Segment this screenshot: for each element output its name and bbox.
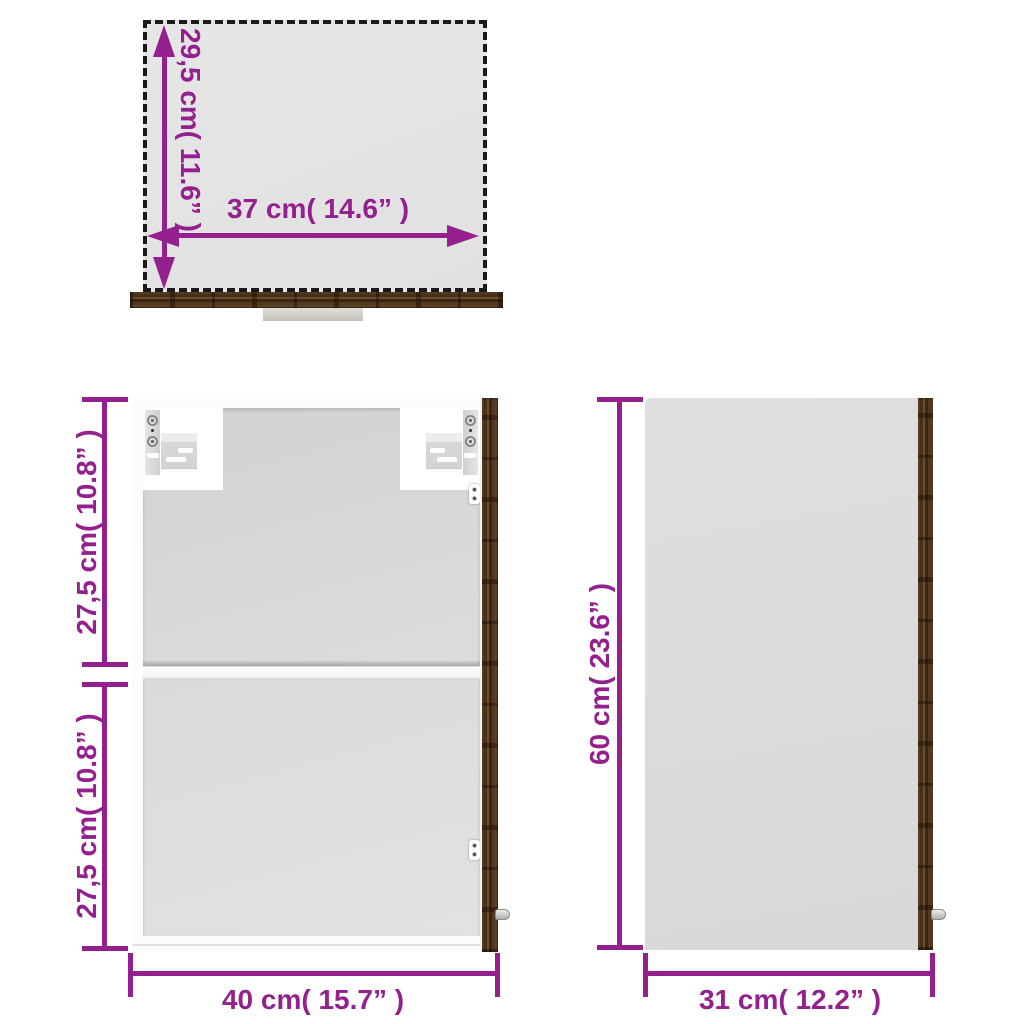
product-dimension-diagram: 29,5 cm( 11.6” ) 37 cm( 14.6” ) — [0, 0, 1024, 1024]
screw-icon — [147, 436, 158, 447]
dim-line-lower-height — [102, 682, 107, 951]
dim-cap — [82, 662, 128, 667]
top-view-depth-label: 29,5 cm( 11.6” ) — [176, 28, 204, 232]
screw-icon — [465, 436, 476, 447]
dim-line-side-height — [617, 397, 622, 950]
door-knob — [931, 909, 946, 920]
top-view-wood-edge — [130, 292, 503, 308]
front-lower-height-label: 27,5 cm( 10.8” ) — [73, 713, 101, 918]
front-upper-height-label: 27,5 cm( 10.8” ) — [73, 429, 101, 634]
side-view-cabinet — [645, 398, 933, 950]
hinge-icon — [469, 840, 480, 860]
screw-hole-icon — [469, 429, 472, 432]
dim-line-side-depth — [643, 971, 935, 976]
top-view-width-label: 37 cm( 14.6” ) — [227, 195, 409, 223]
side-height-label: 60 cm( 23.6” ) — [586, 583, 614, 765]
hinge-icon — [469, 484, 480, 504]
bracket-slot — [147, 453, 159, 458]
bracket-slot — [464, 453, 476, 458]
bracket-slot — [178, 448, 193, 453]
front-width-label: 40 cm( 15.7” ) — [222, 986, 404, 1014]
wall-bracket-right — [400, 408, 480, 490]
dim-line-front-width — [128, 971, 500, 976]
glass-door-wood-edge — [482, 398, 498, 952]
wall-bracket-left — [143, 408, 223, 490]
front-view-cabinet — [132, 398, 498, 952]
screw-hole-icon — [151, 429, 154, 432]
dim-tick — [495, 953, 500, 997]
dim-tick — [930, 953, 935, 997]
width-arrow-shaft — [176, 233, 448, 238]
width-arrow-left-icon — [147, 225, 179, 247]
cabinet-bottom-edge — [132, 944, 482, 946]
top-view-door-tab — [263, 308, 363, 321]
dim-cap — [597, 945, 643, 950]
bracket-slot — [430, 448, 445, 453]
bracket-slot — [166, 457, 186, 462]
side-panel — [645, 398, 918, 950]
door-knob — [495, 909, 510, 920]
dim-line-upper-height — [102, 397, 107, 667]
depth-arrow-down-icon — [153, 257, 175, 289]
bracket-slot — [437, 457, 457, 462]
shelf — [143, 660, 480, 680]
width-arrow-right-icon — [447, 225, 479, 247]
side-wood-edge — [918, 398, 933, 950]
screw-icon — [147, 415, 158, 426]
side-depth-label: 31 cm( 12.2” ) — [699, 986, 881, 1014]
dim-cap — [82, 946, 128, 951]
screw-icon — [465, 415, 476, 426]
